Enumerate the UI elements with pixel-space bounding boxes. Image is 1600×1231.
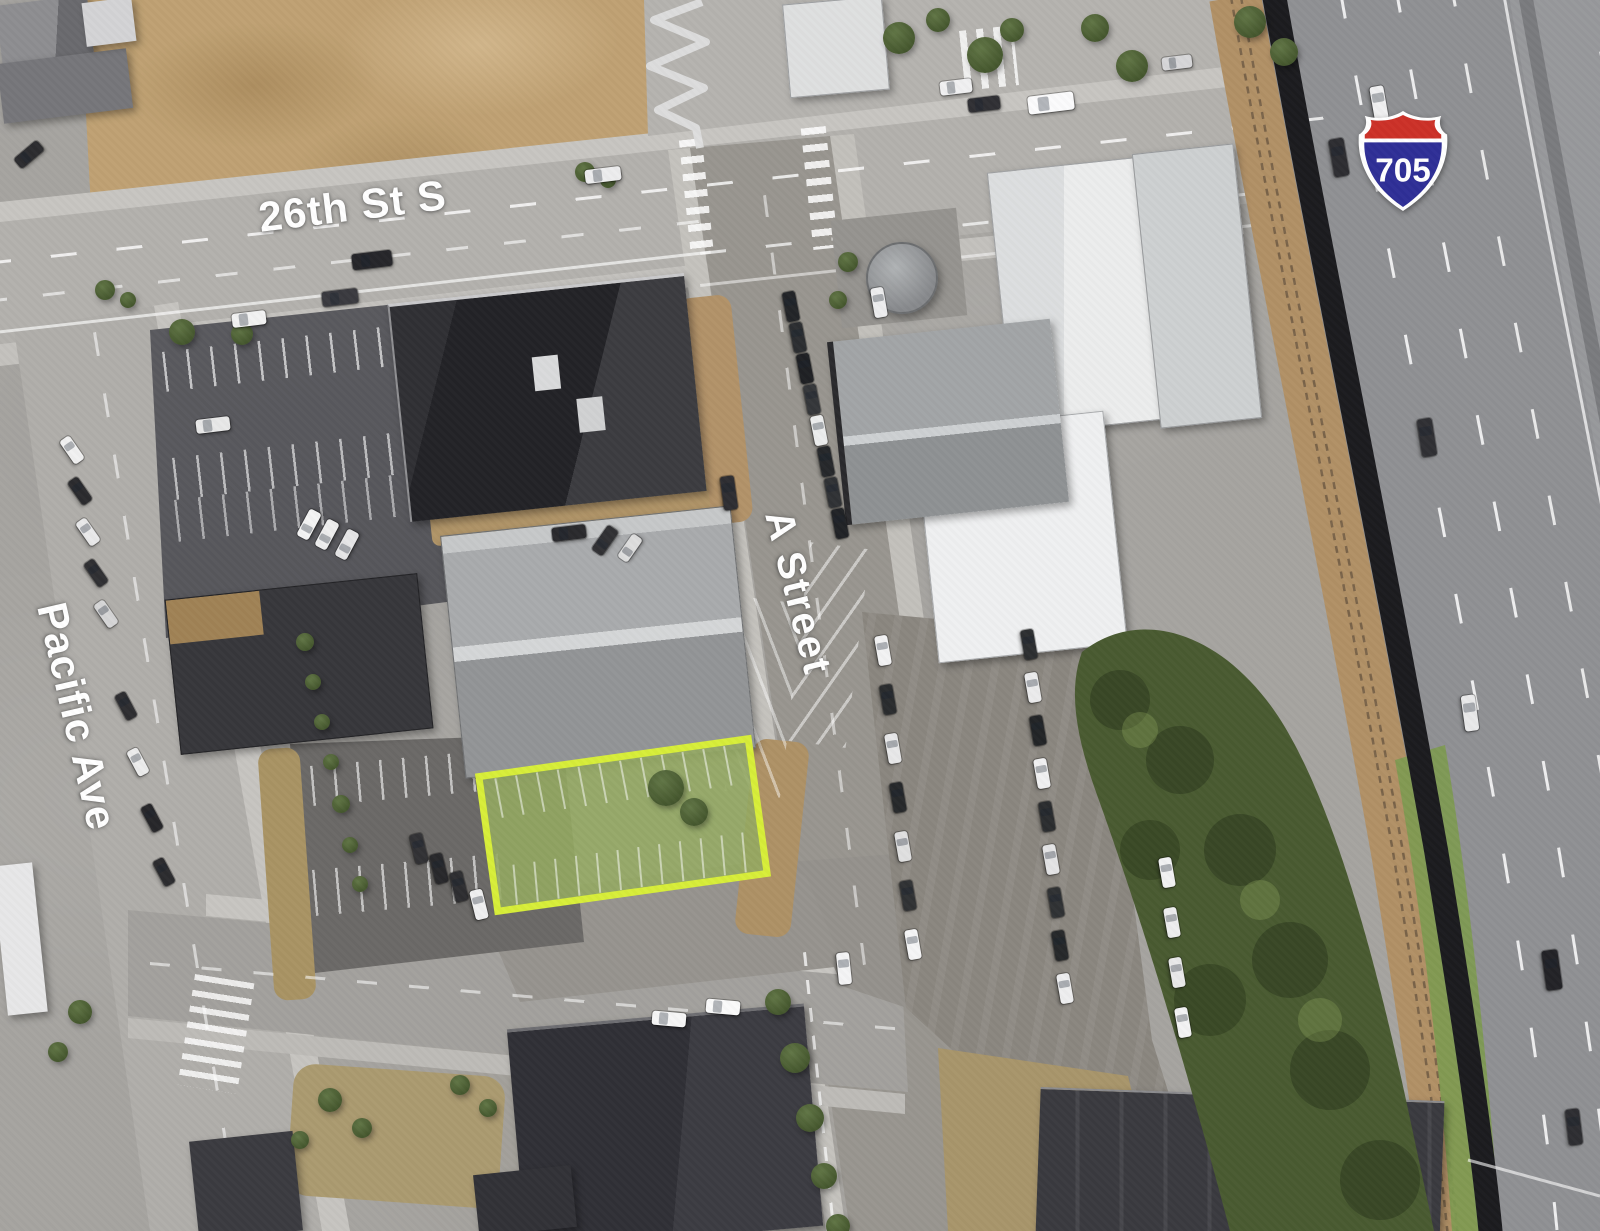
interstate-number: 705 bbox=[1375, 153, 1431, 190]
tree bbox=[352, 1118, 372, 1138]
car bbox=[705, 999, 740, 1016]
tree bbox=[318, 1088, 342, 1112]
tree bbox=[1116, 50, 1148, 82]
tree bbox=[450, 1075, 470, 1095]
tree bbox=[479, 1099, 497, 1117]
tree-band bbox=[1075, 629, 1434, 1231]
tree bbox=[48, 1042, 68, 1062]
tree bbox=[1081, 14, 1109, 42]
tree bbox=[796, 1104, 824, 1132]
tree bbox=[95, 280, 115, 300]
tree bbox=[680, 798, 708, 826]
tree bbox=[648, 770, 684, 806]
aerial-map: 26th St S A Street Pacific Ave 705 bbox=[0, 0, 1600, 1231]
highlighted-parcel bbox=[479, 739, 767, 912]
car bbox=[651, 1011, 686, 1028]
tree bbox=[305, 674, 321, 690]
tree bbox=[829, 291, 847, 309]
tree bbox=[780, 1043, 810, 1073]
tree bbox=[342, 837, 358, 853]
interstate-705-shield: 705 bbox=[1354, 110, 1452, 212]
tree bbox=[811, 1163, 837, 1189]
tree bbox=[883, 22, 915, 54]
tree bbox=[169, 319, 195, 345]
tree bbox=[296, 633, 314, 651]
tree bbox=[68, 1000, 92, 1024]
tree bbox=[291, 1131, 309, 1149]
tree bbox=[314, 714, 330, 730]
tree bbox=[1270, 38, 1298, 66]
tree bbox=[1234, 6, 1266, 38]
tree bbox=[120, 292, 136, 308]
tree bbox=[1000, 18, 1024, 42]
tree bbox=[967, 37, 1003, 73]
tree bbox=[352, 876, 368, 892]
tree bbox=[332, 795, 350, 813]
tree bbox=[926, 8, 950, 32]
tree bbox=[323, 754, 339, 770]
tree bbox=[838, 252, 858, 272]
tree bbox=[765, 989, 791, 1015]
tree bbox=[826, 1214, 850, 1231]
